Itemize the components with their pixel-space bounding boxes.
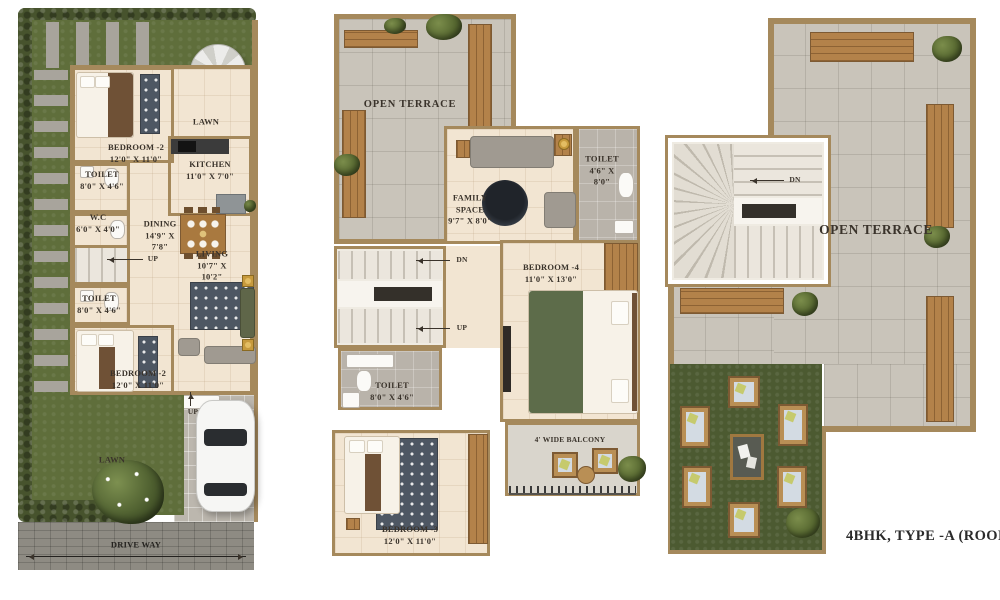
corridor	[446, 246, 502, 348]
dn-arrow	[416, 260, 450, 261]
label-up: UP	[457, 323, 467, 333]
wardrobe	[468, 434, 488, 544]
balcony-railing	[509, 486, 636, 495]
armchair	[178, 338, 200, 356]
floorplan-sheet: LAWN BEDROOM -212'0" X 11'0" KITCHEN11'0…	[0, 0, 1000, 600]
label-lawn-top: LAWN	[193, 116, 219, 127]
label-wc: W.C6'0" X 4'0"	[76, 201, 120, 247]
wicker-seat	[778, 404, 808, 446]
terrace-bench	[926, 104, 954, 228]
label-bedroom3: BEDROOM -312'0" X 11'0"	[382, 513, 438, 559]
double-bed	[344, 436, 400, 514]
label-roof-open-terrace: OPEN TERRACE	[819, 221, 933, 239]
dn-arrow	[750, 180, 784, 181]
sofa	[470, 136, 554, 168]
label-bedroom4: BEDROOM -411'0" X 13'0"	[523, 251, 579, 297]
garden-table	[730, 434, 764, 480]
stair-well-opening	[372, 285, 434, 303]
label-toilet-bottom: TOILET8'0" X 4'6"	[77, 282, 121, 328]
roof-wall-terrace-bottom	[820, 426, 976, 432]
side-table	[456, 140, 470, 158]
kitchen-island	[216, 194, 246, 214]
up-arrow	[416, 328, 450, 329]
roof-wall-top	[768, 18, 976, 24]
sink	[614, 220, 634, 234]
up-arrow	[107, 259, 143, 260]
up-arrow-entry	[190, 392, 191, 406]
double-bed	[528, 290, 638, 414]
double-bed	[76, 72, 134, 138]
shower-tray	[342, 392, 360, 408]
plan-first-floor: OPEN TERRACE FAMILY SPACE9'7" X 8'0" TOI…	[330, 8, 642, 564]
stair-flight-upper	[338, 251, 442, 279]
terrace-bench	[810, 32, 914, 62]
stair-flight-lower	[734, 226, 822, 278]
wicker-seat	[728, 502, 760, 538]
label-living: LIVING10'7" X 10'2"	[187, 237, 237, 294]
staircase	[72, 245, 130, 285]
stepping-stones-left	[34, 70, 68, 392]
label-roof-dn: DN	[789, 175, 800, 185]
rug	[140, 74, 160, 134]
wicker-seat	[777, 466, 807, 508]
terrace-bench	[468, 24, 492, 128]
label-toilet-top: TOILET8'0" X 4'6"	[80, 158, 124, 204]
dining-chairs	[184, 207, 220, 213]
label-up-entry: UP	[188, 407, 198, 417]
wicker-seat	[728, 376, 760, 408]
wicker-chair	[592, 448, 618, 474]
label-driveway: DRIVE WAY	[111, 539, 161, 550]
label-balcony: 4' WIDE BALCONY	[535, 435, 606, 445]
wicker-chair	[552, 452, 578, 478]
label-toilet-middle: TOILET8'0" X 4'6"	[370, 369, 414, 415]
balcony-plant	[618, 456, 646, 482]
label-kitchen: KITCHEN11'0" X 7'0"	[186, 148, 234, 194]
plan-ground-floor: LAWN BEDROOM -212'0" X 11'0" KITCHEN11'0…	[18, 8, 262, 570]
stair-flight-lower	[338, 309, 442, 343]
terrace-bench	[680, 288, 784, 314]
stair-winder-treads	[674, 144, 734, 278]
label-lawn-bottom: LAWN	[99, 454, 125, 465]
roof-wall-right	[970, 18, 976, 432]
roof-wall-left-mid	[668, 280, 674, 366]
driveway-dimension-line	[26, 556, 246, 557]
car-top-view	[196, 400, 255, 512]
table-lamp	[558, 138, 570, 150]
side-table	[242, 275, 254, 287]
label-family-space: FAMILY SPACE9'7" X 8'0"	[448, 181, 492, 238]
label-toilet-upper: TOILET4'6" X 8'0"	[582, 142, 622, 199]
sofa	[240, 288, 255, 338]
flowering-tree	[92, 460, 164, 524]
armchair	[544, 192, 576, 228]
wicker-seat	[682, 466, 712, 508]
side-table	[242, 339, 254, 351]
tv-unit	[503, 326, 511, 392]
balcony-table	[577, 466, 595, 484]
label-up-stairs: UP	[148, 254, 158, 264]
label-bedroom2-bottom: BEDROOM -212'0" X 11'0"	[110, 357, 166, 403]
wicker-seat	[680, 406, 710, 448]
label-open-terrace: OPEN TERRACE	[364, 98, 457, 112]
plan-caption: 4BHK, TYPE -A (ROOF PLAN	[846, 528, 1000, 545]
stair-well-opening	[740, 202, 798, 220]
label-dn: DN	[456, 255, 467, 265]
plan-roof: DN OPEN TERRACE	[668, 8, 1000, 568]
side-table	[346, 518, 360, 530]
stair-flight-upper	[734, 144, 822, 196]
terrace-bench	[344, 30, 418, 48]
terrace-bench	[926, 296, 954, 422]
vanity-counter	[346, 354, 394, 368]
roof-wall-left-upper	[768, 18, 774, 144]
